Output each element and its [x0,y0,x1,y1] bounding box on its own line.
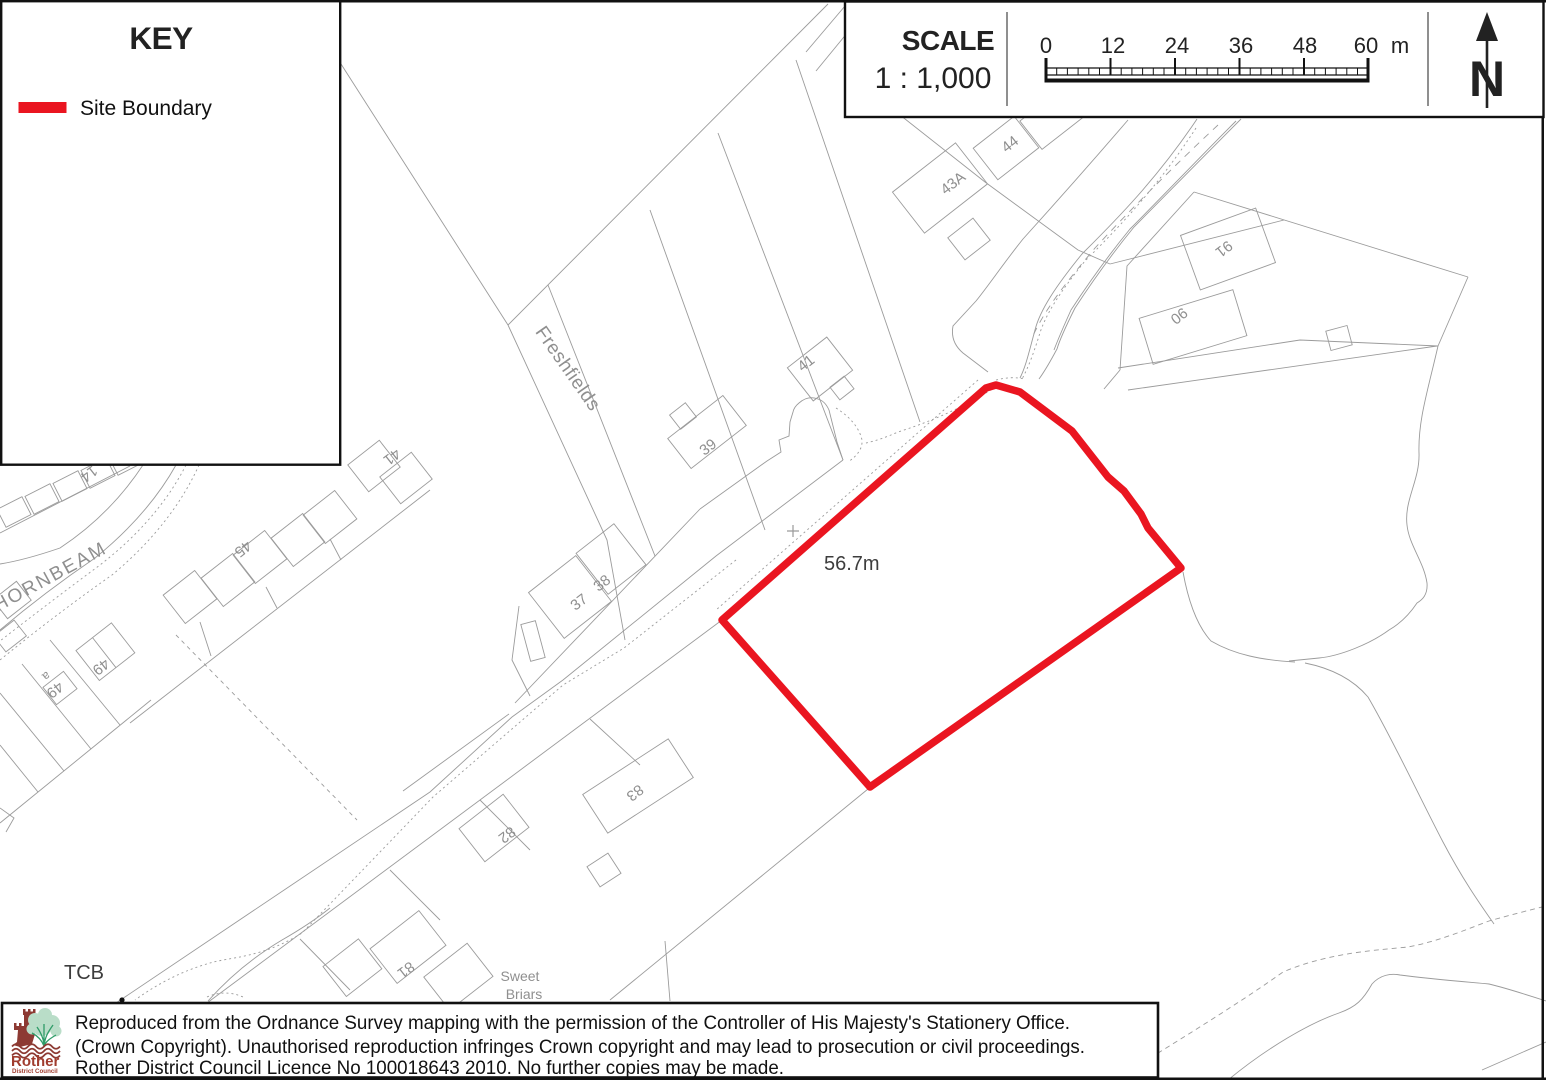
svg-text:12: 12 [1101,33,1125,58]
svg-text:Rother District Council Licenc: Rother District Council Licence No 10001… [75,1058,784,1079]
svg-text:48: 48 [1293,33,1317,58]
svg-text:1 : 1,000: 1 : 1,000 [875,62,992,95]
svg-text:Sweet: Sweet [501,968,540,984]
svg-text:60: 60 [1354,33,1378,58]
svg-text:Site Boundary: Site Boundary [80,97,212,120]
svg-text:Reproduced from the Ordnance S: Reproduced from the Ordnance Survey mapp… [75,1013,1070,1034]
svg-text:36: 36 [1229,33,1253,58]
svg-text:N: N [1469,51,1505,107]
svg-text:TCB: TCB [64,962,104,984]
svg-text:District Council: District Council [12,1068,58,1075]
svg-text:0: 0 [1040,33,1052,58]
svg-text:SCALE: SCALE [902,25,994,56]
svg-text:KEY: KEY [129,20,193,56]
svg-text:m: m [1391,33,1409,58]
svg-text:24: 24 [1165,33,1189,58]
svg-text:(Crown Copyright). Unauthorise: (Crown Copyright). Unauthorised reproduc… [75,1037,1085,1058]
svg-text:Briars: Briars [506,986,543,1002]
svg-text:56.7m: 56.7m [824,553,880,575]
